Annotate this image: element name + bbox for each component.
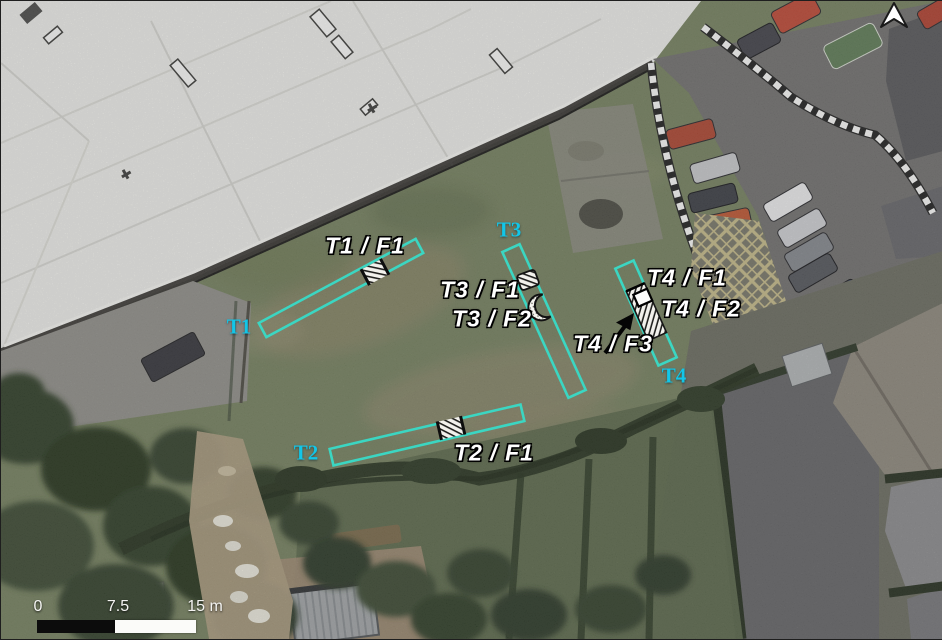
scale-bar <box>37 620 196 633</box>
scale-tick-start: 0 <box>34 598 43 616</box>
scale-tick-mid: 7.5 <box>107 598 129 616</box>
aerial-figure: T1 / F1 T3 / F1 T3 / F2 T4 / F1 T4 / F2 … <box>0 0 942 640</box>
label-t3-f2: T3 / F2 <box>452 306 532 333</box>
scale-tick-end: 15 m <box>187 598 223 616</box>
label-trench-t4: T4 <box>662 364 687 389</box>
label-t2-f1: T2 / F1 <box>454 440 534 467</box>
scale-bar-white-segment <box>115 620 196 633</box>
scale-bar-black-segment <box>37 620 115 633</box>
label-trench-t1: T1 <box>227 315 252 340</box>
label-t3-f1: T3 / F1 <box>440 277 520 304</box>
label-t4-f2: T4 / F2 <box>661 296 741 323</box>
label-t1-f1: T1 / F1 <box>325 233 405 260</box>
label-t4-f1: T4 / F1 <box>647 265 727 292</box>
label-trench-t3: T3 <box>497 218 522 243</box>
label-t4-f3: T4 / F3 <box>573 331 653 358</box>
label-trench-t2: T2 <box>294 441 319 466</box>
